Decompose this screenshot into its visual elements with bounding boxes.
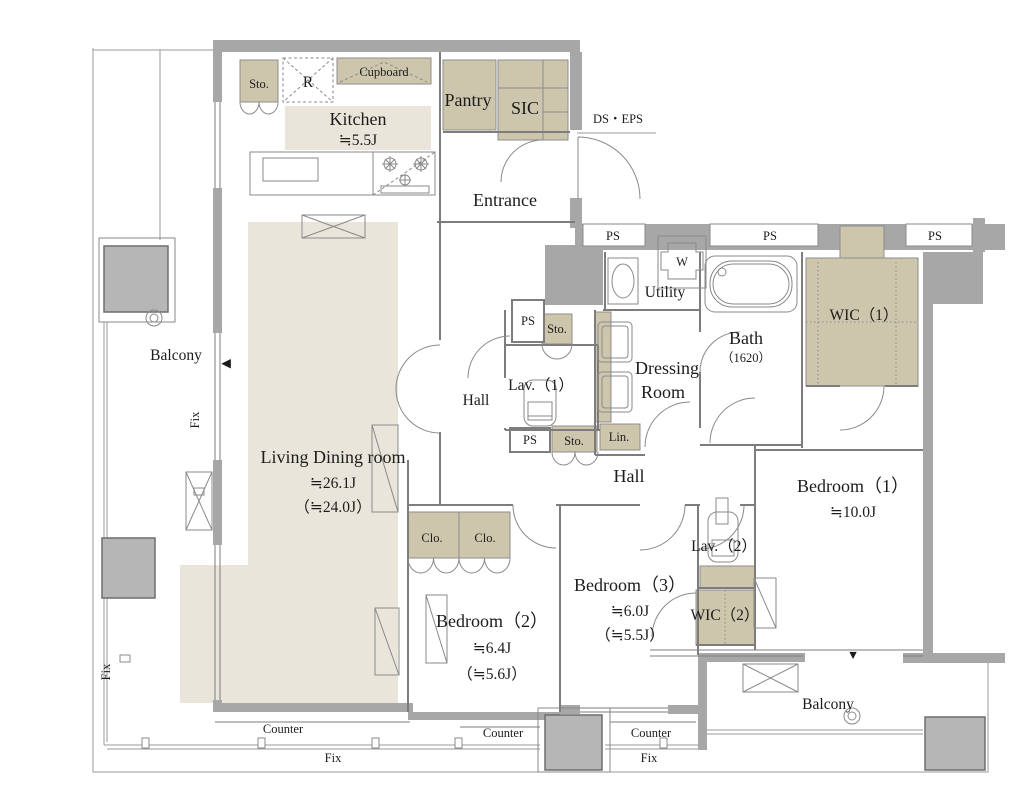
lav2-label: Lav.（2） <box>691 538 757 555</box>
counter-label: Counter <box>263 722 304 736</box>
living-size: ≒26.1J <box>310 475 356 492</box>
hall-label: Hall <box>463 392 490 409</box>
wic1-niche <box>840 226 884 260</box>
wic2-label: WIC（2） <box>691 607 760 624</box>
ps-label: PS <box>606 229 620 243</box>
closet-folding-door <box>408 558 510 573</box>
living-label: Living Dining room <box>261 447 406 467</box>
dressing-door <box>645 402 690 447</box>
sic-label: SIC <box>511 98 539 118</box>
ds-eps-label: DS・EPS <box>593 112 643 126</box>
bedroom2-label: Bedroom（2） <box>436 611 548 631</box>
entry-marker-left: ◀ <box>221 356 231 370</box>
stove-icon <box>373 152 435 195</box>
counter-label: Counter <box>631 726 672 740</box>
floor-plan: Sto. R Cupboard Pantry SIC DS・EPS Kitche… <box>0 0 1012 800</box>
kitchen-label: Kitchen <box>330 109 387 129</box>
hall-label: Hall <box>614 466 645 486</box>
utility-label: Utility <box>645 284 686 301</box>
bedroom3-size-2: （≒5.5J） <box>595 627 664 644</box>
fix-label: Fix <box>188 411 202 428</box>
floor-plan-canvas: Sto. R Cupboard Pantry SIC DS・EPS Kitche… <box>0 0 1012 800</box>
pillar <box>104 246 168 312</box>
bedroom3-size: ≒6.0J <box>611 603 649 620</box>
kitchen-size: ≒5.5J <box>339 132 377 149</box>
wic1-label: WIC（1） <box>830 307 899 324</box>
balcony-label: Balcony <box>802 696 854 713</box>
storage-label: Sto. <box>564 434 584 448</box>
entrance-door <box>578 137 640 199</box>
closet-label: Clo. <box>474 531 495 545</box>
bedroom1-size: ≒10.0J <box>830 504 876 521</box>
balcony-label: Balcony <box>150 347 202 364</box>
storage-folding-door <box>552 452 598 465</box>
storage-folding-door <box>542 344 572 359</box>
bedroom2-size-2: （≒5.6J） <box>457 666 526 683</box>
living-double-door <box>396 345 440 433</box>
living-size-2: （≒24.0J） <box>294 499 371 516</box>
storage-folding-door <box>240 102 278 114</box>
entrance-label: Entrance <box>473 190 537 210</box>
pillar <box>545 715 602 770</box>
fix-label: Fix <box>641 751 658 765</box>
pantry-label: Pantry <box>445 90 492 110</box>
pillar <box>102 538 155 598</box>
bedroom1-door <box>710 398 755 443</box>
ps-label: PS <box>521 314 535 328</box>
utility-sink-icon <box>608 258 638 304</box>
bedroom3-door <box>640 505 685 550</box>
fridge-label: R <box>303 74 314 91</box>
ps-label: PS <box>763 229 777 243</box>
wic1-door <box>840 386 884 430</box>
bedroom1-label: Bedroom（1） <box>797 476 909 496</box>
sink-icon <box>263 158 318 181</box>
bathtub-icon <box>705 256 797 312</box>
sic-door <box>501 140 543 182</box>
ps-label: PS <box>928 229 942 243</box>
bedroom2-door <box>513 505 556 548</box>
dressing-label-2: Room <box>641 382 685 402</box>
lav2-counter <box>700 566 755 588</box>
entrance-pillar <box>545 245 603 305</box>
linen-label: Lin. <box>609 430 629 444</box>
dressing-label-1: Dressing <box>635 358 699 378</box>
cupboard-label: Cupboard <box>359 65 409 79</box>
lav1-door <box>468 336 510 378</box>
bedroom3-label: Bedroom（3） <box>574 575 686 595</box>
fix-label: Fix <box>99 663 113 680</box>
ps-label: PS <box>523 433 537 447</box>
entry-marker-down: ▼ <box>847 648 859 662</box>
fix-label: Fix <box>325 751 342 765</box>
kitchen-counter-icon <box>250 152 435 195</box>
storage-label: Sto. <box>249 77 269 91</box>
ps-niches <box>583 224 972 246</box>
counter-label: Counter <box>483 726 524 740</box>
bath-size: （1620） <box>721 351 771 365</box>
storage-label: Sto. <box>547 322 567 336</box>
pillar <box>925 717 985 770</box>
bath-label: Bath <box>729 328 763 348</box>
bedroom2-size: ≒6.4J <box>473 640 511 657</box>
lav1-label: Lav.（1） <box>508 377 574 394</box>
closet-label: Clo. <box>421 531 442 545</box>
washer-pan-label: W <box>676 255 688 269</box>
